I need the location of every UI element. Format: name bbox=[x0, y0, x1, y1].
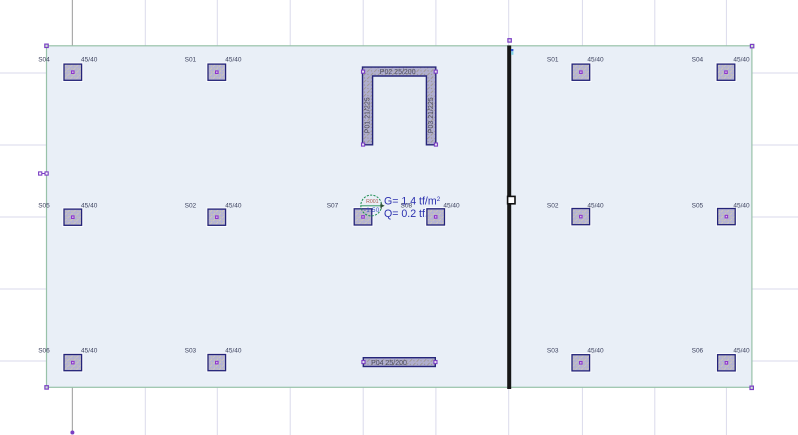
svg-text:S01: S01 bbox=[185, 56, 197, 63]
svg-text:-1.50: -1.50 bbox=[364, 208, 380, 214]
svg-text:45/40: 45/40 bbox=[443, 203, 460, 210]
svg-text:P03 21/225: P03 21/225 bbox=[428, 97, 435, 133]
svg-text:P04 25/200: P04 25/200 bbox=[371, 360, 407, 367]
svg-text:G= 1.4 tf/m2: G= 1.4 tf/m2 bbox=[384, 196, 441, 208]
svg-text:S03: S03 bbox=[185, 348, 197, 355]
svg-text:45/40: 45/40 bbox=[225, 203, 242, 210]
svg-text:S07: S07 bbox=[327, 203, 339, 210]
svg-text:S03: S03 bbox=[547, 348, 559, 355]
svg-text:S04: S04 bbox=[38, 56, 50, 63]
svg-text:45/40: 45/40 bbox=[587, 56, 604, 63]
svg-text:45/40: 45/40 bbox=[733, 56, 750, 63]
svg-text:S05: S05 bbox=[38, 203, 50, 210]
svg-text:S06: S06 bbox=[692, 348, 704, 355]
svg-text:S02: S02 bbox=[185, 203, 197, 210]
svg-text:45/40: 45/40 bbox=[587, 348, 604, 355]
svg-text:45/40: 45/40 bbox=[81, 348, 98, 355]
svg-text:45/40: 45/40 bbox=[733, 203, 750, 210]
svg-text:45/40: 45/40 bbox=[225, 348, 242, 355]
svg-text:P01 21/225: P01 21/225 bbox=[365, 97, 372, 133]
svg-text:45/40: 45/40 bbox=[81, 56, 98, 63]
svg-text:S08: S08 bbox=[401, 203, 413, 210]
svg-text:45/40: 45/40 bbox=[81, 203, 98, 210]
svg-text:S04: S04 bbox=[692, 56, 704, 63]
svg-text:S05: S05 bbox=[692, 203, 704, 210]
svg-text:45/40: 45/40 bbox=[587, 203, 604, 210]
svg-text:S02: S02 bbox=[547, 203, 559, 210]
svg-text:45/40: 45/40 bbox=[733, 348, 750, 355]
svg-text:P02 25/200: P02 25/200 bbox=[380, 69, 416, 76]
svg-text:45/40: 45/40 bbox=[225, 56, 242, 63]
svg-text:R001: R001 bbox=[366, 199, 379, 205]
svg-text:S06: S06 bbox=[38, 348, 50, 355]
svg-text:S01: S01 bbox=[547, 56, 559, 63]
